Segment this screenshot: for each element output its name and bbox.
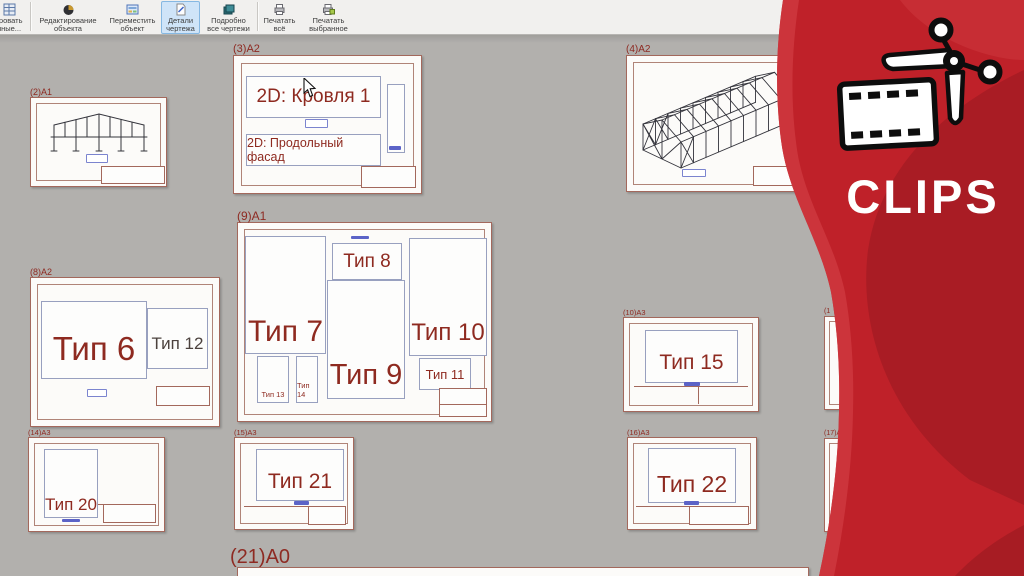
sheet-label: (8)A2: [30, 267, 52, 277]
sheet-8-a2[interactable]: (8)A2 Тип 12 Тип 6: [30, 277, 220, 427]
sheet-label: (9)A1: [237, 209, 266, 223]
view-box-type-13[interactable]: Тип 13: [257, 356, 289, 403]
film-scissors-icon: [839, 80, 936, 149]
gable-frame-drawing: [49, 111, 149, 155]
view-box-type-11[interactable]: Тип 11: [419, 358, 471, 390]
view-box-roof-plan[interactable]: 2D: Кровля 1: [246, 76, 381, 118]
edit-object-icon: [33, 2, 103, 17]
stamp: [389, 146, 401, 150]
sheet-label: (17)A: [824, 430, 841, 437]
sheet-margin: [829, 321, 851, 405]
title-block-line: [634, 386, 748, 387]
view-box-type-22[interactable]: Тип 22: [648, 448, 736, 503]
sheet-label: (2)A1: [30, 87, 52, 97]
detail-all-drawings-icon: [200, 2, 257, 17]
sheet-label: (4)A2: [626, 44, 650, 55]
sheet-label: (14)A3: [28, 428, 51, 437]
sheet-label: (15)A3: [234, 428, 257, 437]
title-block: [103, 504, 156, 523]
title-block: [308, 506, 346, 525]
view-box-type-7[interactable]: Тип 7: [245, 236, 326, 354]
title-block: [156, 386, 210, 406]
toolbar-button-print-all[interactable]: Печатать всё: [259, 1, 300, 34]
title-block: [753, 166, 796, 186]
title-block: [439, 404, 487, 417]
toolbar-button-edit-object[interactable]: Редактирование объекта: [32, 1, 104, 34]
filter-table-icon: [0, 2, 31, 17]
sheet-partial-right-2[interactable]: (17)A: [824, 438, 856, 532]
banner-dark-corner: [955, 525, 1024, 576]
view-box-side-strip[interactable]: [387, 84, 405, 153]
sheet-15-a3[interactable]: (15)A3 Тип 21: [234, 437, 354, 530]
view-box-type-21[interactable]: Тип 21: [256, 449, 344, 501]
view-box-type-6[interactable]: Тип 6: [41, 301, 147, 379]
toolbar-button-detail-all-drawings[interactable]: Подробно все чертежи: [199, 1, 258, 34]
sheet-3-a2[interactable]: (3)A2 2D: Кровля 1 2D: Продольный фасад: [233, 55, 422, 194]
stamp: [682, 169, 706, 177]
title-block-line: [698, 386, 699, 404]
drawing-details-icon: [162, 2, 199, 17]
stamp: [86, 154, 108, 163]
sheet-label: (10)A3: [623, 308, 646, 317]
view-box-longitudinal-facade[interactable]: 2D: Продольный фасад: [246, 134, 381, 166]
printer-selected-icon: [300, 2, 357, 17]
toolbar-button-filter[interactable]: тровать нные...: [0, 1, 32, 34]
stamp: [351, 236, 369, 239]
toolbar-button-move-object[interactable]: Переместить объект: [103, 1, 162, 34]
app-window: тровать нные... Редактирование объекта П…: [0, 0, 1024, 576]
banner-dark-swirl: [866, 70, 1024, 505]
view-box-type-20[interactable]: Тип 20: [44, 449, 98, 518]
view-box-type-15[interactable]: Тип 15: [645, 330, 738, 383]
clips-text: CLIPS: [846, 170, 999, 223]
title-block: [689, 506, 749, 525]
sheet-14-a3[interactable]: (14)A3 Тип 20: [28, 437, 165, 532]
sheet-label: (21)A0: [230, 546, 290, 569]
view-box-type-9[interactable]: Тип 9: [327, 280, 405, 399]
canvas-top-shadow: [0, 35, 1024, 43]
stamp: [684, 501, 699, 505]
toolbar-button-drawing-details[interactable]: Детали чертежа: [161, 1, 200, 34]
stamp: [294, 501, 309, 505]
view-box-type-10[interactable]: Тип 10: [409, 238, 487, 356]
stamp: [62, 519, 80, 522]
view-box-type-14[interactable]: Тип 14: [296, 356, 318, 403]
sheet-21-a0[interactable]: (21)A0: [237, 567, 809, 576]
title-block-line: [636, 506, 689, 507]
sheet-16-a3[interactable]: (16)A3 Тип 22: [627, 437, 757, 530]
title-block: [361, 166, 416, 188]
sheet-10-a3[interactable]: (10)A3 Тип 15: [623, 317, 759, 412]
view-box-type-8[interactable]: Тип 8: [332, 243, 402, 280]
sheet-label: (1: [824, 308, 830, 315]
sheet-9-a1[interactable]: (9)A1 Тип 7 Тип 8 Тип 9 Тип 10 Тип 11 Ти…: [237, 222, 492, 422]
toolbar-button-print-selected[interactable]: Печатать выбранное: [299, 1, 358, 34]
sheet-partial-right-1[interactable]: (1: [824, 316, 856, 410]
title-block: [101, 166, 165, 184]
printer-icon: [260, 2, 299, 17]
sheet-2-a1[interactable]: (2)A1: [30, 97, 167, 187]
sheet-margin: [829, 443, 851, 527]
view-box-type-12[interactable]: Тип 12: [147, 308, 208, 369]
title-block-line: [244, 506, 308, 507]
stamp: [305, 119, 328, 128]
structure-3d-wireframe-drawing: [633, 62, 823, 174]
sheet-4-a2[interactable]: (4)A2: [626, 55, 832, 192]
toolbar: тровать нные... Редактирование объекта П…: [0, 0, 1024, 35]
stamp: [87, 389, 107, 397]
sheet-label: (3)A2: [233, 43, 260, 55]
sheet-label: (16)A3: [627, 428, 650, 437]
move-object-icon: [104, 2, 161, 17]
